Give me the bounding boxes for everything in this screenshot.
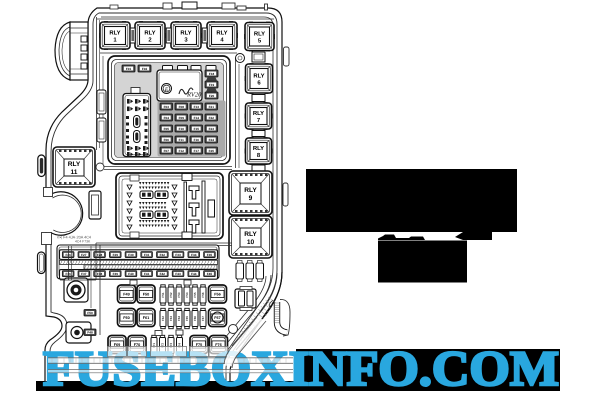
svg-text:RLY: RLY — [216, 30, 227, 37]
svg-text:F55: F55 — [193, 292, 197, 298]
svg-text:RLY: RLY — [109, 30, 120, 37]
svg-text:F18: F18 — [209, 72, 215, 76]
svg-text:F42: F42 — [160, 272, 166, 276]
svg-text:F52: F52 — [169, 292, 173, 298]
svg-text:RLY: RLY — [254, 31, 265, 38]
svg-text:F12: F12 — [179, 149, 185, 153]
svg-text:F01: F01 — [126, 67, 132, 71]
svg-text:F60: F60 — [123, 316, 130, 320]
svg-text:F41: F41 — [144, 272, 150, 276]
svg-text:F43: F43 — [175, 272, 181, 276]
svg-text:F07: F07 — [164, 149, 170, 153]
svg-text:F16: F16 — [194, 138, 200, 142]
svg-text:F62: F62 — [161, 316, 165, 322]
svg-text:F56: F56 — [201, 292, 205, 298]
svg-text:F31: F31 — [144, 253, 150, 257]
svg-text:F50: F50 — [143, 293, 150, 297]
svg-text:F32: F32 — [160, 253, 166, 257]
svg-text:9: 9 — [249, 195, 253, 202]
svg-text:RLY: RLY — [244, 231, 257, 238]
svg-text:F45: F45 — [207, 272, 213, 276]
svg-text:F05: F05 — [164, 127, 170, 131]
svg-text:F21: F21 — [209, 105, 215, 109]
svg-text:F20: F20 — [209, 94, 215, 98]
svg-text:F23: F23 — [209, 127, 215, 131]
svg-text:F64: F64 — [177, 316, 181, 322]
svg-text:F19: F19 — [209, 83, 215, 87]
svg-text:F44: F44 — [191, 272, 197, 276]
svg-text:F13: F13 — [194, 105, 200, 109]
svg-text:11: 11 — [71, 169, 78, 176]
svg-text:F08: F08 — [179, 105, 185, 109]
svg-text:F27: F27 — [81, 253, 87, 257]
svg-text:F30: F30 — [128, 253, 134, 257]
svg-text:RLY: RLY — [144, 30, 155, 37]
svg-text:F66: F66 — [193, 316, 197, 322]
svg-text:F24: F24 — [209, 138, 215, 142]
svg-text:RLY: RLY — [68, 161, 81, 168]
svg-text:F61: F61 — [143, 316, 150, 320]
svg-text:F35: F35 — [207, 253, 213, 257]
svg-text:F06: F06 — [164, 138, 170, 142]
svg-text:4C4 F73K: 4C4 F73K — [75, 240, 91, 244]
svg-text:RV20: RV20 — [186, 92, 202, 99]
svg-text:F09: F09 — [179, 116, 185, 120]
svg-text:F40: F40 — [128, 272, 134, 276]
svg-text:F11: F11 — [179, 138, 184, 142]
svg-text:F63: F63 — [169, 316, 173, 322]
svg-text:F03: F03 — [164, 105, 170, 109]
svg-text:F50: F50 — [87, 311, 93, 315]
svg-text:RLY: RLY — [244, 187, 257, 194]
svg-text:F17: F17 — [194, 149, 200, 153]
svg-text:F65: F65 — [185, 316, 189, 322]
svg-text:F10: F10 — [179, 127, 185, 131]
svg-text:F14: F14 — [194, 116, 200, 120]
svg-text:F02: F02 — [142, 67, 148, 71]
svg-text:F48: F48 — [87, 331, 93, 335]
svg-text:F37: F37 — [81, 272, 87, 276]
svg-text:RLY: RLY — [180, 30, 191, 37]
svg-text:F49: F49 — [123, 293, 130, 297]
svg-text:F39: F39 — [113, 272, 119, 276]
svg-text:E: E — [164, 87, 169, 93]
svg-text:F56: F56 — [214, 293, 221, 297]
svg-text:F67: F67 — [214, 316, 221, 320]
svg-text:F54: F54 — [185, 292, 189, 298]
svg-text:F25: F25 — [209, 149, 215, 153]
svg-text:F15: F15 — [194, 127, 200, 131]
svg-text:F29: F29 — [113, 253, 119, 257]
svg-text:F34: F34 — [191, 253, 197, 257]
svg-text:F04: F04 — [164, 116, 170, 120]
svg-text:10: 10 — [247, 239, 255, 246]
svg-text:F53: F53 — [177, 292, 181, 298]
svg-text:RLY: RLY — [253, 110, 264, 117]
svg-text:F67: F67 — [201, 316, 205, 322]
svg-text:F33: F33 — [175, 253, 181, 257]
svg-text:F22: F22 — [209, 116, 215, 120]
svg-text:F51: F51 — [161, 292, 165, 298]
svg-text:RLY: RLY — [253, 145, 264, 152]
svg-text:RLY: RLY — [253, 73, 264, 80]
